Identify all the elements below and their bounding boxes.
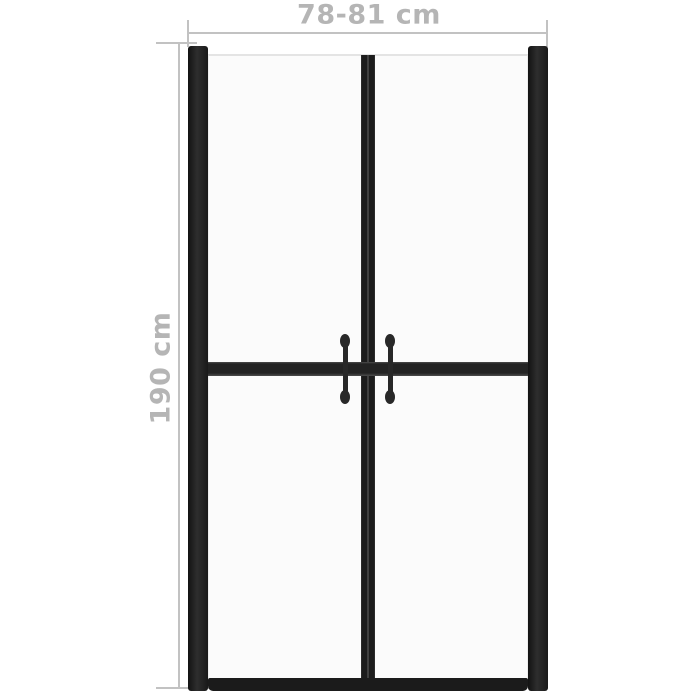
product-dimension-diagram: 78-81 cm 190 cm <box>0 0 700 700</box>
height-dimension-label: 190 cm <box>146 312 177 425</box>
left-handle-bottom-knob <box>340 390 350 404</box>
left-wall-profile <box>188 46 208 691</box>
left-door-handle <box>340 334 350 404</box>
left-handle-top-knob <box>340 334 350 348</box>
width-dimension-line <box>188 32 548 34</box>
bottom-rail <box>208 678 528 691</box>
height-dimension-tick-top <box>156 42 197 44</box>
height-dimension-line <box>178 43 180 688</box>
right-handle-top-knob <box>385 334 395 348</box>
width-dimension-label: 78-81 cm <box>297 0 441 31</box>
right-door-handle <box>385 334 395 404</box>
width-dimension-tick-right <box>546 20 548 47</box>
right-wall-profile <box>528 46 548 691</box>
right-handle-bottom-knob <box>385 390 395 404</box>
middle-crossbar <box>208 362 528 376</box>
